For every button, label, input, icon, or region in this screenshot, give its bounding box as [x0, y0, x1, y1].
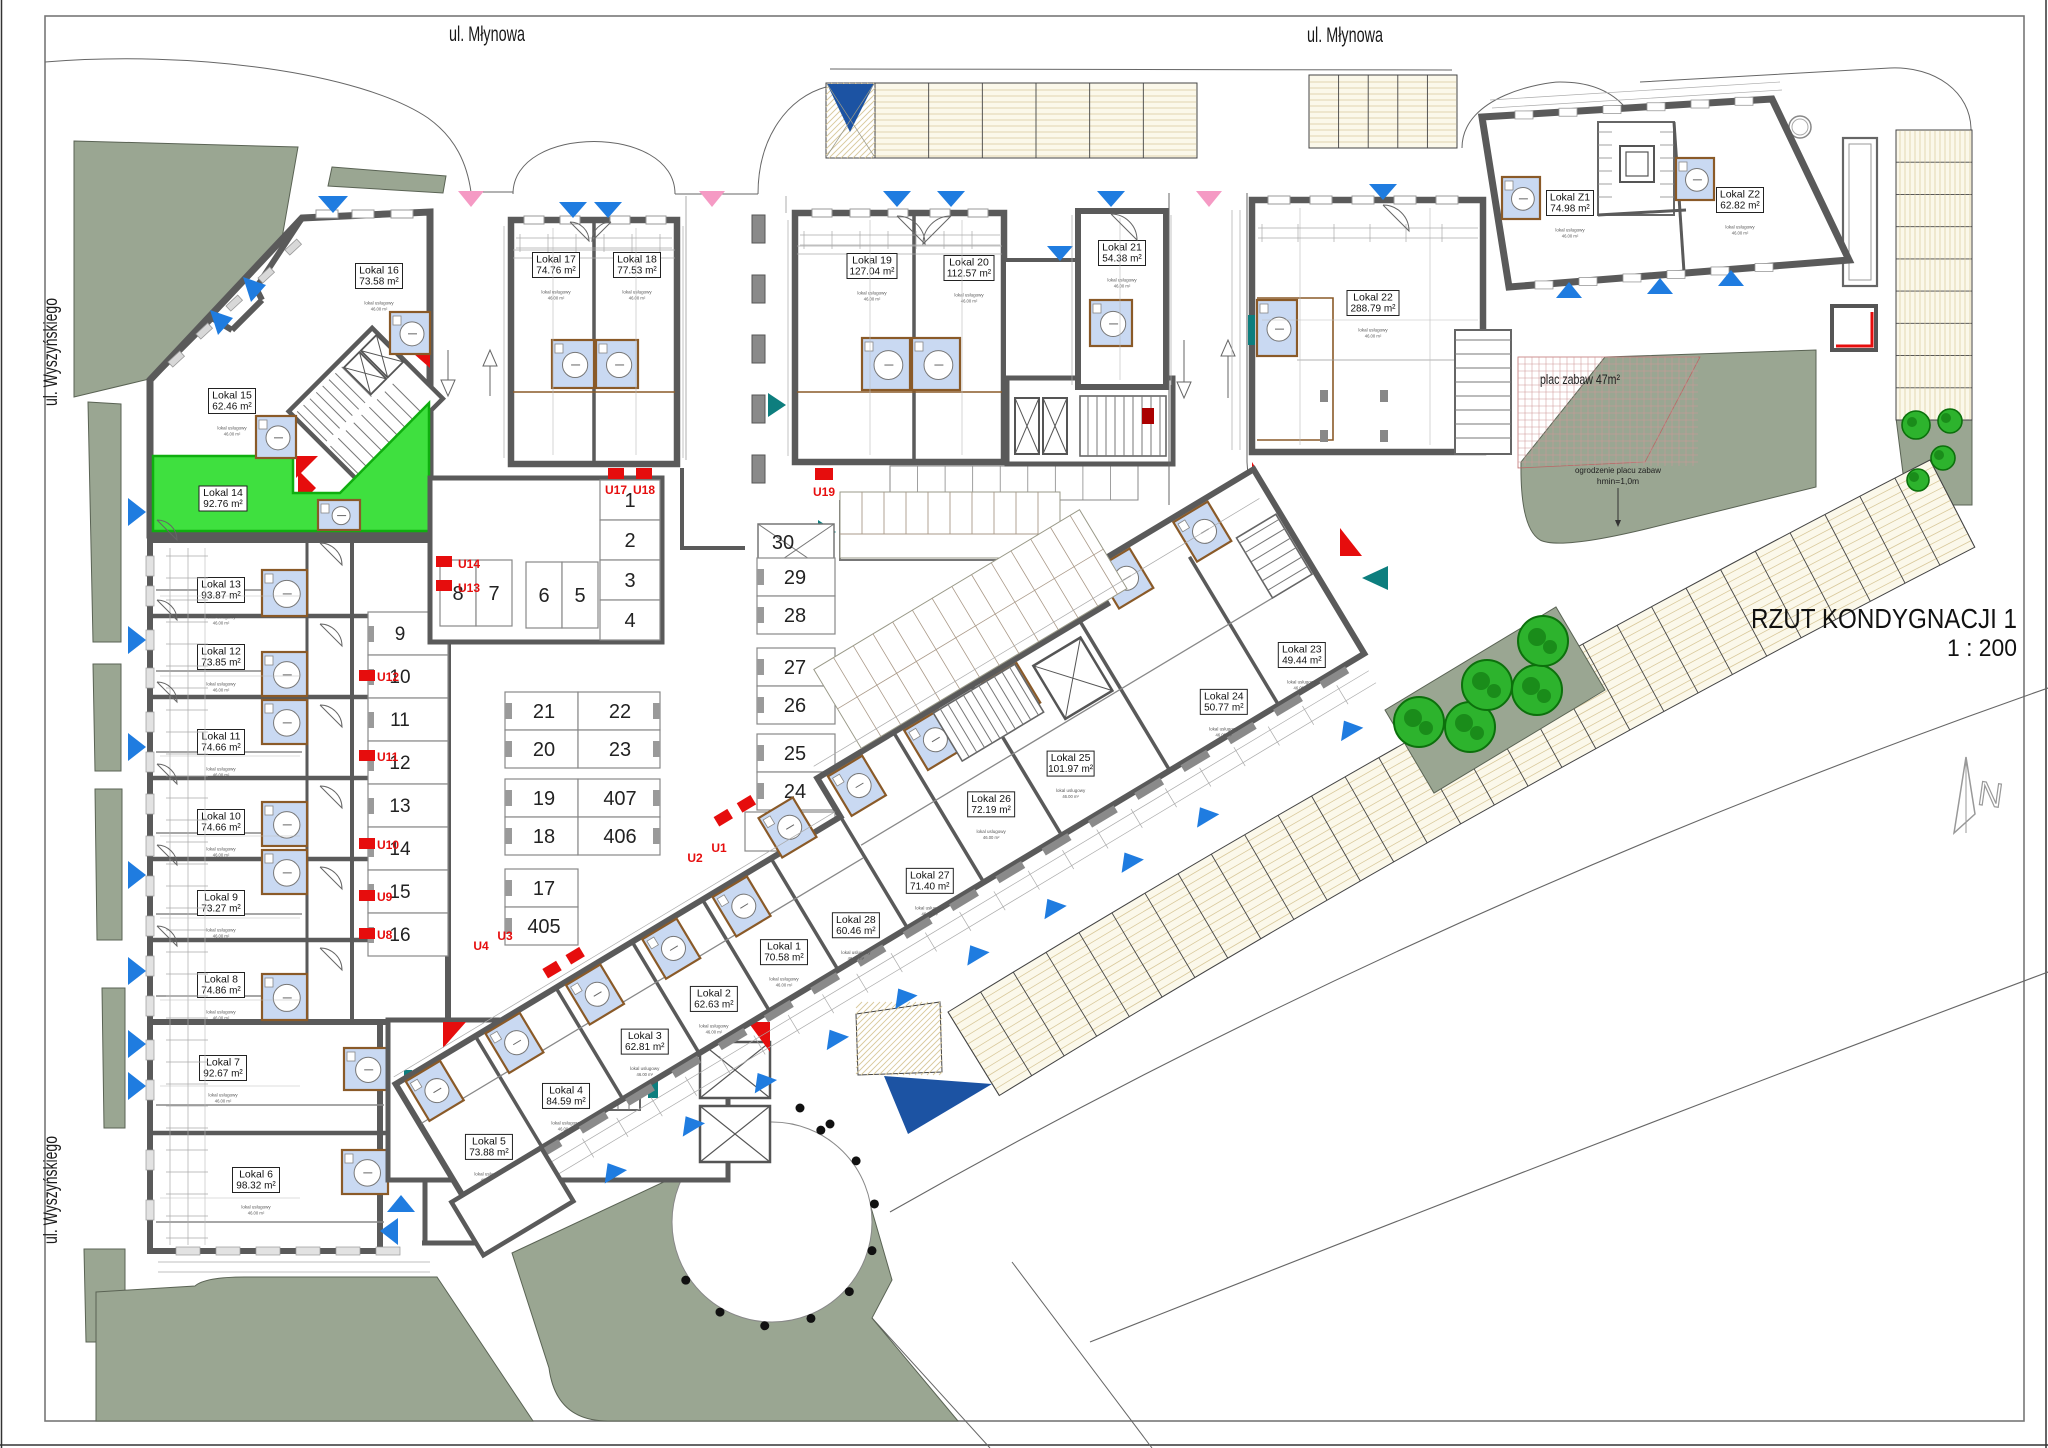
svg-text:1 : 200: 1 : 200	[1947, 635, 2017, 662]
svg-text:lokal uslugowy: lokal uslugowy	[1056, 788, 1086, 793]
svg-text:lokal uslugowy: lokal uslugowy	[551, 1120, 581, 1125]
svg-text:73.88 m²: 73.88 m²	[469, 1147, 509, 1158]
svg-text:lokal uslugowy: lokal uslugowy	[206, 847, 236, 852]
svg-text:49.44 m²: 49.44 m²	[1282, 656, 1322, 667]
svg-text:4: 4	[624, 610, 635, 632]
svg-text:46.00 m²: 46.00 m²	[1216, 732, 1233, 737]
svg-text:46.00 m²: 46.00 m²	[629, 296, 646, 301]
svg-text:62.63 m²: 62.63 m²	[694, 999, 734, 1010]
svg-text:46.00 m²: 46.00 m²	[224, 432, 241, 437]
svg-text:lokal uslugowy: lokal uslugowy	[217, 426, 247, 431]
svg-text:Lokal 23: Lokal 23	[1282, 644, 1322, 656]
svg-text:Lokal 27: Lokal 27	[910, 869, 950, 881]
svg-text:lokal uslugowy: lokal uslugowy	[1209, 726, 1239, 731]
svg-text:46.00 m²: 46.00 m²	[213, 853, 230, 858]
svg-text:46.00 m²: 46.00 m²	[1562, 234, 1579, 239]
svg-text:77.53 m²: 77.53 m²	[617, 266, 657, 277]
svg-text:74.76 m²: 74.76 m²	[536, 266, 576, 277]
svg-text:Lokal 28: Lokal 28	[836, 914, 876, 926]
svg-text:46.00 m²: 46.00 m²	[864, 297, 881, 302]
svg-text:lokal uslugowy: lokal uslugowy	[699, 1023, 729, 1028]
svg-text:46.00 m²: 46.00 m²	[1062, 794, 1079, 799]
svg-text:22: 22	[609, 701, 631, 723]
svg-text:406: 406	[603, 826, 636, 848]
svg-text:13: 13	[389, 796, 410, 817]
svg-text:Lokal 17: Lokal 17	[536, 254, 576, 266]
svg-text:46.00 m²: 46.00 m²	[213, 688, 230, 693]
svg-text:ul. Wyszyńskiego: ul. Wyszyńskiego	[41, 1136, 62, 1244]
svg-text:26: 26	[784, 695, 806, 717]
svg-text:9: 9	[395, 624, 406, 645]
svg-text:lokal uslugowy: lokal uslugowy	[841, 950, 871, 955]
svg-text:5: 5	[574, 585, 585, 607]
svg-text:lokal uslugowy: lokal uslugowy	[977, 829, 1007, 834]
svg-text:50.77 m²: 50.77 m²	[1204, 702, 1244, 713]
svg-text:U12: U12	[377, 670, 399, 684]
svg-text:lokal uslugowy: lokal uslugowy	[1358, 328, 1388, 333]
svg-text:46.00 m²: 46.00 m²	[548, 296, 565, 301]
svg-text:74.66 m²: 74.66 m²	[201, 823, 241, 834]
svg-text:19: 19	[533, 788, 555, 810]
svg-text:Lokal 5: Lokal 5	[472, 1135, 506, 1147]
svg-text:3: 3	[624, 570, 635, 592]
svg-text:Lokal 19: Lokal 19	[852, 255, 892, 267]
svg-text:lokal uslugowy: lokal uslugowy	[769, 977, 799, 982]
svg-text:lokal uslugowy: lokal uslugowy	[1287, 680, 1317, 685]
svg-text:46.00 m²: 46.00 m²	[248, 1211, 265, 1216]
svg-text:U10: U10	[377, 838, 399, 852]
svg-text:Lokal 15: Lokal 15	[212, 390, 252, 402]
svg-text:Lokal 12: Lokal 12	[201, 646, 241, 658]
svg-text:11: 11	[390, 710, 410, 731]
svg-text:lokal uslugowy: lokal uslugowy	[1725, 225, 1755, 230]
svg-text:U8: U8	[377, 928, 393, 942]
svg-text:lokal uslugowy: lokal uslugowy	[206, 767, 236, 772]
svg-text:U4: U4	[473, 939, 489, 953]
svg-text:U13: U13	[458, 581, 480, 595]
svg-text:46.00 m²: 46.00 m²	[637, 1072, 654, 1077]
svg-text:lokal uslugowy: lokal uslugowy	[241, 1205, 271, 1210]
svg-text:U9: U9	[377, 890, 393, 904]
svg-text:288.79 m²: 288.79 m²	[1350, 304, 1396, 315]
svg-text:73.58 m²: 73.58 m²	[359, 277, 399, 288]
svg-text:405: 405	[527, 916, 560, 938]
svg-text:ul. Wyszyńskiego: ul. Wyszyńskiego	[41, 298, 62, 406]
svg-text:46.00 m²: 46.00 m²	[776, 983, 793, 988]
svg-text:U11: U11	[377, 750, 399, 764]
svg-text:46.00 m²: 46.00 m²	[215, 1099, 232, 1104]
svg-text:Lokal 4: Lokal 4	[549, 1084, 583, 1096]
svg-text:hmin=1,0m: hmin=1,0m	[1597, 476, 1639, 486]
svg-text:407: 407	[603, 788, 636, 810]
svg-text:N: N	[1975, 775, 2005, 816]
svg-text:46.00 m²: 46.00 m²	[558, 1126, 575, 1131]
svg-text:46.00 m²: 46.00 m²	[1365, 334, 1382, 339]
svg-text:92.67 m²: 92.67 m²	[203, 1069, 243, 1080]
svg-text:16: 16	[389, 925, 410, 946]
svg-text:Lokal 7: Lokal 7	[206, 1057, 240, 1069]
svg-text:98.32 m²: 98.32 m²	[236, 1181, 276, 1192]
svg-text:62.81 m²: 62.81 m²	[625, 1042, 665, 1053]
svg-text:ul. Młynowa: ul. Młynowa	[449, 23, 525, 46]
svg-text:70.58 m²: 70.58 m²	[764, 953, 804, 964]
svg-text:U14: U14	[458, 557, 480, 571]
svg-text:15: 15	[389, 882, 410, 903]
svg-text:46.00 m²: 46.00 m²	[371, 307, 388, 312]
svg-text:Lokal 9: Lokal 9	[204, 892, 238, 904]
svg-text:U19: U19	[813, 485, 835, 499]
svg-text:84.59 m²: 84.59 m²	[546, 1096, 586, 1107]
svg-text:7: 7	[488, 583, 499, 605]
svg-text:127.04 m²: 127.04 m²	[849, 267, 895, 278]
svg-text:Lokal 8: Lokal 8	[204, 974, 238, 986]
svg-text:U2: U2	[687, 851, 703, 865]
svg-text:Lokal Z1: Lokal Z1	[1550, 192, 1590, 204]
svg-text:U17: U17	[605, 483, 627, 497]
svg-text:73.85 m²: 73.85 m²	[201, 658, 241, 669]
svg-text:74.98 m²: 74.98 m²	[1550, 204, 1590, 215]
svg-text:lokal uslugowy: lokal uslugowy	[1555, 228, 1585, 233]
svg-text:Lokal 13: Lokal 13	[201, 579, 241, 591]
svg-text:Lokal 16: Lokal 16	[359, 265, 399, 277]
svg-text:Lokal 22: Lokal 22	[1353, 292, 1393, 304]
svg-text:plac zabaw 47m²: plac zabaw 47m²	[1540, 371, 1620, 387]
svg-text:46.00 m²: 46.00 m²	[213, 621, 230, 626]
svg-text:28: 28	[784, 605, 806, 627]
svg-text:54.38 m²: 54.38 m²	[1102, 254, 1142, 265]
svg-text:U18: U18	[633, 483, 655, 497]
svg-text:25: 25	[784, 743, 806, 765]
svg-text:46.00 m²: 46.00 m²	[922, 911, 939, 916]
svg-text:Lokal 6: Lokal 6	[239, 1169, 273, 1181]
svg-text:ogrodzenie placu zabaw: ogrodzenie placu zabaw	[1575, 465, 1662, 475]
svg-text:lokal uslugowy: lokal uslugowy	[206, 1010, 236, 1015]
svg-text:46.00 m²: 46.00 m²	[983, 835, 1000, 840]
svg-text:46.00 m²: 46.00 m²	[213, 773, 230, 778]
svg-text:46.00 m²: 46.00 m²	[1294, 686, 1311, 691]
svg-text:Lokal Z2: Lokal Z2	[1720, 189, 1760, 201]
svg-text:72.19 m²: 72.19 m²	[971, 805, 1011, 816]
svg-text:62.46 m²: 62.46 m²	[212, 402, 252, 413]
svg-text:74.66 m²: 74.66 m²	[201, 743, 241, 754]
svg-text:46.00 m²: 46.00 m²	[961, 299, 978, 304]
svg-text:lokal uslugowy: lokal uslugowy	[622, 290, 652, 295]
svg-text:Lokal 24: Lokal 24	[1204, 690, 1244, 702]
svg-text:RZUT KONDYGNACJI 1: RZUT KONDYGNACJI 1	[1751, 603, 2017, 634]
svg-text:73.27 m²: 73.27 m²	[201, 904, 241, 915]
svg-text:Lokal 3: Lokal 3	[628, 1030, 662, 1042]
svg-text:lokal uslugowy: lokal uslugowy	[1107, 278, 1137, 283]
svg-text:27: 27	[784, 657, 806, 679]
svg-text:101.97 m²: 101.97 m²	[1048, 764, 1094, 775]
svg-text:46.00 m²: 46.00 m²	[848, 956, 865, 961]
svg-text:71.40 m²: 71.40 m²	[910, 881, 950, 892]
svg-text:lokal uslugowy: lokal uslugowy	[206, 615, 236, 620]
svg-text:Lokal 14: Lokal 14	[203, 487, 243, 499]
svg-text:20: 20	[533, 739, 555, 761]
svg-text:Lokal 1: Lokal 1	[767, 941, 801, 953]
svg-text:29: 29	[784, 567, 806, 589]
svg-text:Lokal 21: Lokal 21	[1102, 242, 1142, 254]
svg-text:Lokal 26: Lokal 26	[971, 793, 1011, 805]
svg-text:ul. Młynowa: ul. Młynowa	[1307, 24, 1383, 47]
svg-text:lokal uslugowy: lokal uslugowy	[630, 1066, 660, 1071]
svg-text:46.00 m²: 46.00 m²	[706, 1029, 723, 1034]
svg-text:46.00 m²: 46.00 m²	[1114, 284, 1131, 289]
svg-text:21: 21	[533, 701, 555, 723]
svg-text:Lokal 25: Lokal 25	[1051, 752, 1091, 764]
svg-text:lokal uslugowy: lokal uslugowy	[208, 1093, 238, 1098]
svg-text:62.82 m²: 62.82 m²	[1720, 201, 1760, 212]
svg-text:lokal uslugowy: lokal uslugowy	[915, 905, 945, 910]
svg-text:lokal uslugowy: lokal uslugowy	[857, 291, 887, 296]
svg-text:lokal uslugowy: lokal uslugowy	[206, 928, 236, 933]
svg-text:92.76 m²: 92.76 m²	[203, 499, 243, 510]
svg-text:74.86 m²: 74.86 m²	[201, 986, 241, 997]
svg-text:17: 17	[533, 878, 555, 900]
svg-text:Lokal 20: Lokal 20	[949, 257, 989, 269]
svg-text:U3: U3	[497, 929, 513, 943]
svg-text:2: 2	[624, 530, 635, 552]
svg-text:Lokal 10: Lokal 10	[201, 811, 241, 823]
svg-text:lokal uslugowy: lokal uslugowy	[206, 682, 236, 687]
svg-text:46.00 m²: 46.00 m²	[1732, 231, 1749, 236]
svg-text:6: 6	[538, 585, 549, 607]
svg-text:60.46 m²: 60.46 m²	[836, 926, 876, 937]
svg-text:U1: U1	[711, 841, 727, 855]
svg-text:Lokal 18: Lokal 18	[617, 254, 657, 266]
svg-text:30: 30	[772, 532, 794, 554]
svg-text:23: 23	[609, 739, 631, 761]
svg-text:18: 18	[533, 826, 555, 848]
svg-text:112.57 m²: 112.57 m²	[947, 269, 992, 280]
svg-text:46.00 m²: 46.00 m²	[213, 934, 230, 939]
svg-text:Lokal 2: Lokal 2	[697, 987, 731, 999]
svg-text:lokal uslugowy: lokal uslugowy	[541, 290, 571, 295]
svg-text:lokal uslugowy: lokal uslugowy	[364, 301, 394, 306]
svg-text:46.00 m²: 46.00 m²	[213, 1016, 230, 1021]
svg-text:lokal uslugowy: lokal uslugowy	[954, 293, 984, 298]
